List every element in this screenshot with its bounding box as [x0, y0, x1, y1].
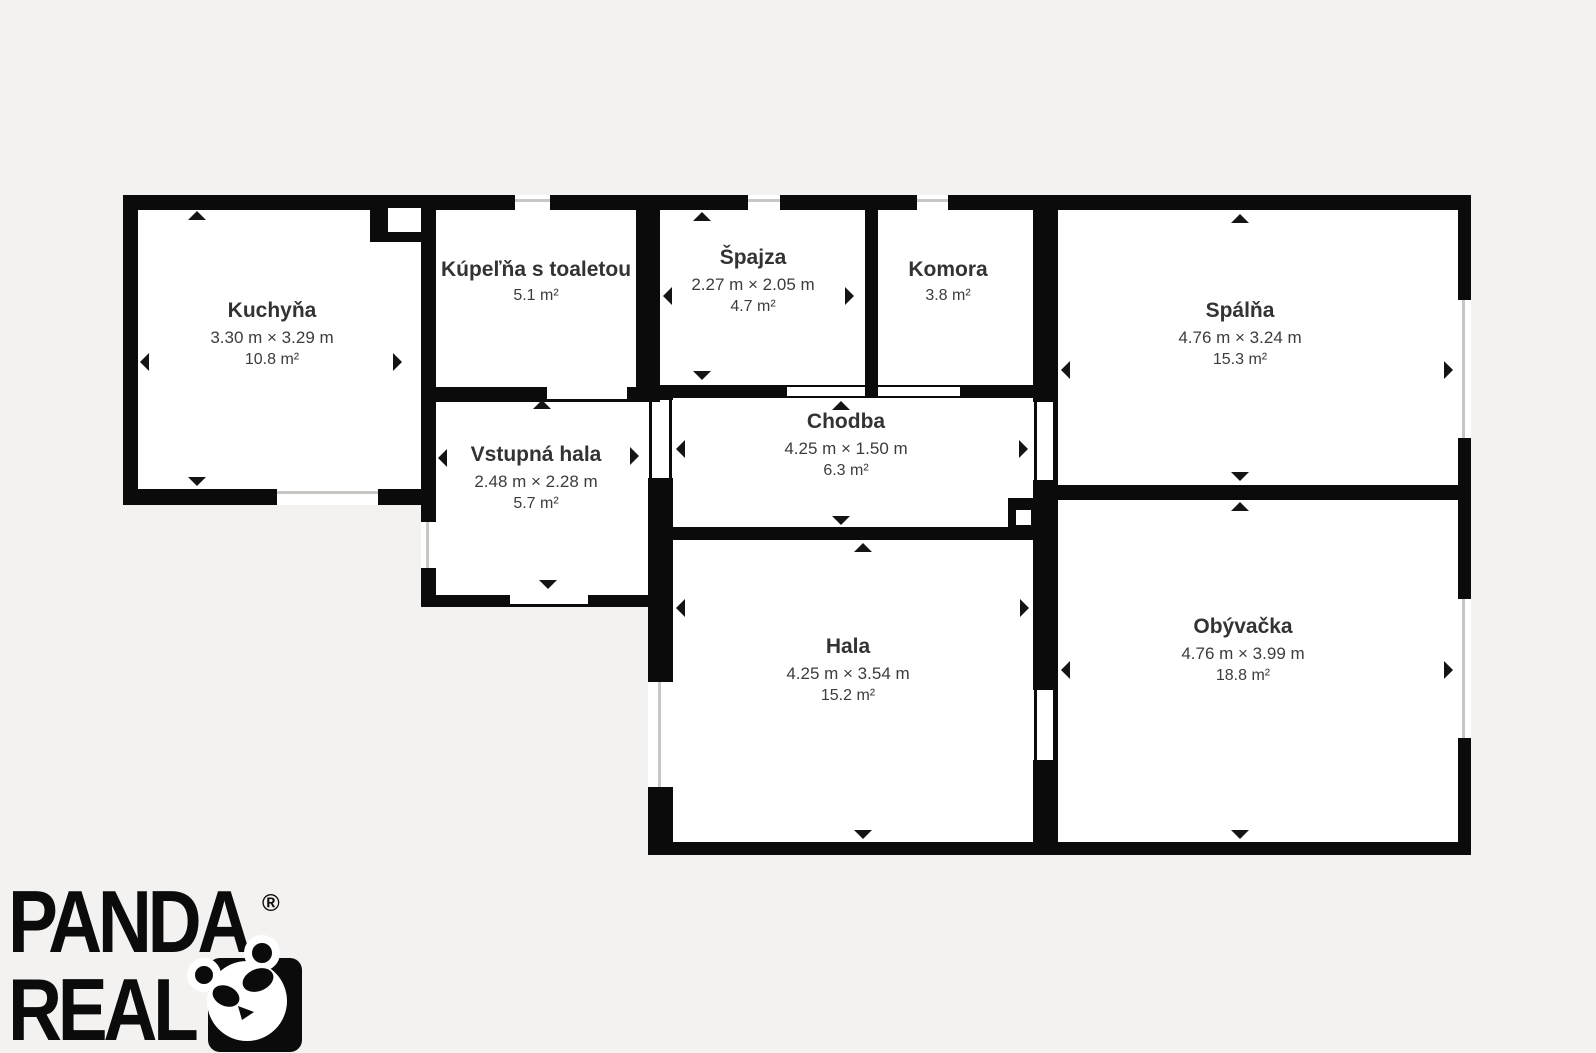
door-komora: [878, 385, 960, 398]
door-obyvacka-r: [1053, 690, 1058, 760]
arrow-right-icon: [1444, 361, 1453, 379]
room-label-komora: Komora 3.8 m²: [908, 258, 987, 305]
room-name: Hala: [786, 635, 909, 659]
wall-bottom-exterior: [648, 842, 1471, 855]
arrow-up-icon: [1231, 502, 1249, 511]
room-label-chodba: Chodba 4.25 m × 1.50 m 6.3 m²: [784, 410, 907, 480]
wall-spajza-komora-divider: [865, 210, 878, 398]
arrow-down-icon: [188, 477, 206, 486]
wall-hala-left-1: [648, 478, 673, 682]
arrow-left-icon: [140, 353, 149, 371]
corner-niche-2: [1016, 510, 1031, 525]
arrow-left-icon: [676, 599, 685, 617]
arrow-down-icon: [854, 830, 872, 839]
arrow-left-icon: [1061, 661, 1070, 679]
window-top-1: [515, 199, 550, 202]
wall-top-3: [780, 195, 917, 210]
door-kupelna: [547, 399, 627, 402]
corner-niche: [388, 208, 421, 232]
wall-right-exterior-2: [1458, 438, 1471, 599]
room-dimensions: 2.48 m × 2.28 m: [471, 472, 602, 492]
room-name: Komora: [908, 258, 987, 282]
room-name: Vstupná hala: [471, 443, 602, 467]
wall-spajza-band-2: [960, 385, 1033, 398]
panda-icon: [190, 928, 320, 1053]
arrow-up-icon: [832, 401, 850, 410]
window-top-3: [917, 199, 948, 202]
room-label-kuchyna: Kuchyňa 3.30 m × 3.29 m 10.8 m²: [210, 299, 333, 369]
wall-spine-3: [1033, 760, 1058, 855]
arrow-down-icon: [832, 516, 850, 525]
room-label-obyvacka: Obývačka 4.76 m × 3.99 m 18.8 m²: [1181, 615, 1304, 685]
room-area: 6.3 m²: [784, 462, 907, 480]
arrow-right-icon: [393, 353, 402, 371]
arrow-right-icon: [1444, 661, 1453, 679]
room-name: Kuchyňa: [210, 299, 333, 323]
room-name: Spálňa: [1178, 299, 1301, 323]
room-area: 3.8 m²: [908, 287, 987, 305]
registered-trademark-icon: ®: [262, 890, 280, 918]
wall-kuchyna-bottom-1: [123, 489, 277, 505]
arrow-down-icon: [693, 371, 711, 380]
wall-kuchyna-bottom-2: [378, 489, 436, 505]
arrow-up-icon: [693, 212, 711, 221]
door-vstupna-entry: [510, 604, 588, 607]
arrow-up-icon: [188, 211, 206, 220]
door-spalna-r: [1053, 402, 1058, 480]
arrow-left-icon: [438, 449, 447, 467]
wall-kupelna-spajza-divider: [636, 210, 660, 398]
room-label-vstupna-hala: Vstupná hala 2.48 m × 2.28 m 5.7 m²: [471, 443, 602, 513]
arrow-right-icon: [1020, 599, 1029, 617]
wall-top-2: [550, 195, 748, 210]
room-area: 18.8 m²: [1181, 667, 1304, 685]
arrow-up-icon: [854, 543, 872, 552]
room-label-spalna: Spálňa 4.76 m × 3.24 m 15.3 m²: [1178, 299, 1301, 369]
arrow-right-icon: [1019, 440, 1028, 458]
door-spalna-l: [1034, 402, 1037, 480]
arrow-left-icon: [676, 440, 685, 458]
room-area: 4.7 m²: [691, 298, 814, 316]
room-area: 5.7 m²: [471, 495, 602, 513]
arrow-right-icon: [845, 287, 854, 305]
wall-kupelna-bottom-1: [436, 387, 547, 402]
arrow-down-icon: [1231, 830, 1249, 839]
arrow-left-icon: [1061, 361, 1070, 379]
window-obyvacka-right: [1462, 599, 1465, 738]
room-name: Obývačka: [1181, 615, 1304, 639]
room-area: 15.2 m²: [786, 687, 909, 705]
room-dimensions: 4.25 m × 1.50 m: [784, 439, 907, 459]
room-dimensions: 4.25 m × 3.54 m: [786, 664, 909, 684]
wall-right-exterior-3: [1458, 738, 1471, 855]
door-obyvacka-l: [1034, 690, 1037, 760]
room-label-kupelna: Kúpeľňa s toaletou 5.1 m²: [441, 258, 631, 305]
wall-vstupna-left-1: [421, 505, 436, 522]
door-spajza: [787, 385, 865, 398]
arrow-left-icon: [663, 287, 672, 305]
arrow-up-icon: [1231, 214, 1249, 223]
wall-vstupna-bottom-1: [421, 595, 510, 607]
arrow-down-icon: [539, 580, 557, 589]
window-vstupna-left: [426, 522, 429, 568]
wall-top-4: [948, 195, 1471, 210]
window-hala-left: [658, 682, 661, 787]
wall-spajza-band-1: [660, 385, 787, 398]
wall-spalna-obyvacka-divider: [1058, 485, 1471, 500]
wall-right-exterior-1: [1458, 198, 1471, 300]
door-vstupna-chodba-r: [669, 400, 672, 478]
room-area: 10.8 m²: [210, 351, 333, 369]
wall-chodba-bottom: [660, 527, 1033, 540]
room-label-hala: Hala 4.25 m × 3.54 m 15.2 m²: [786, 635, 909, 705]
arrow-down-icon: [1231, 472, 1249, 481]
room-name: Chodba: [784, 410, 907, 434]
room-dimensions: 4.76 m × 3.24 m: [1178, 328, 1301, 348]
room-dimensions: 2.27 m × 2.05 m: [691, 275, 814, 295]
wall-top-1: [123, 195, 515, 210]
floor-plan-page: Kuchyňa 3.30 m × 3.29 m 10.8 m² Kúpeľňa …: [0, 0, 1596, 1053]
wall-left-exterior: [123, 195, 138, 505]
door-vstupna-chodba-l: [649, 400, 652, 478]
wall-spine-2: [1033, 480, 1058, 690]
arrow-right-icon: [630, 447, 639, 465]
window-top-2: [748, 199, 780, 202]
room-area: 15.3 m²: [1178, 351, 1301, 369]
room-dimensions: 3.30 m × 3.29 m: [210, 328, 333, 348]
wall-kuchyna-right: [421, 242, 436, 489]
arrow-up-icon: [533, 400, 551, 409]
room-dimensions: 4.76 m × 3.99 m: [1181, 644, 1304, 664]
window-kuchyna-bottom: [277, 491, 378, 494]
room-area: 5.1 m²: [441, 287, 631, 305]
room-label-spajza: Špajza 2.27 m × 2.05 m 4.7 m²: [691, 246, 814, 316]
room-name: Špajza: [691, 246, 814, 270]
brand-name-line2: REAL: [8, 966, 195, 1053]
wall-spine-1: [1033, 198, 1058, 402]
window-spalna-right: [1462, 300, 1465, 438]
room-name: Kúpeľňa s toaletou: [441, 258, 631, 282]
